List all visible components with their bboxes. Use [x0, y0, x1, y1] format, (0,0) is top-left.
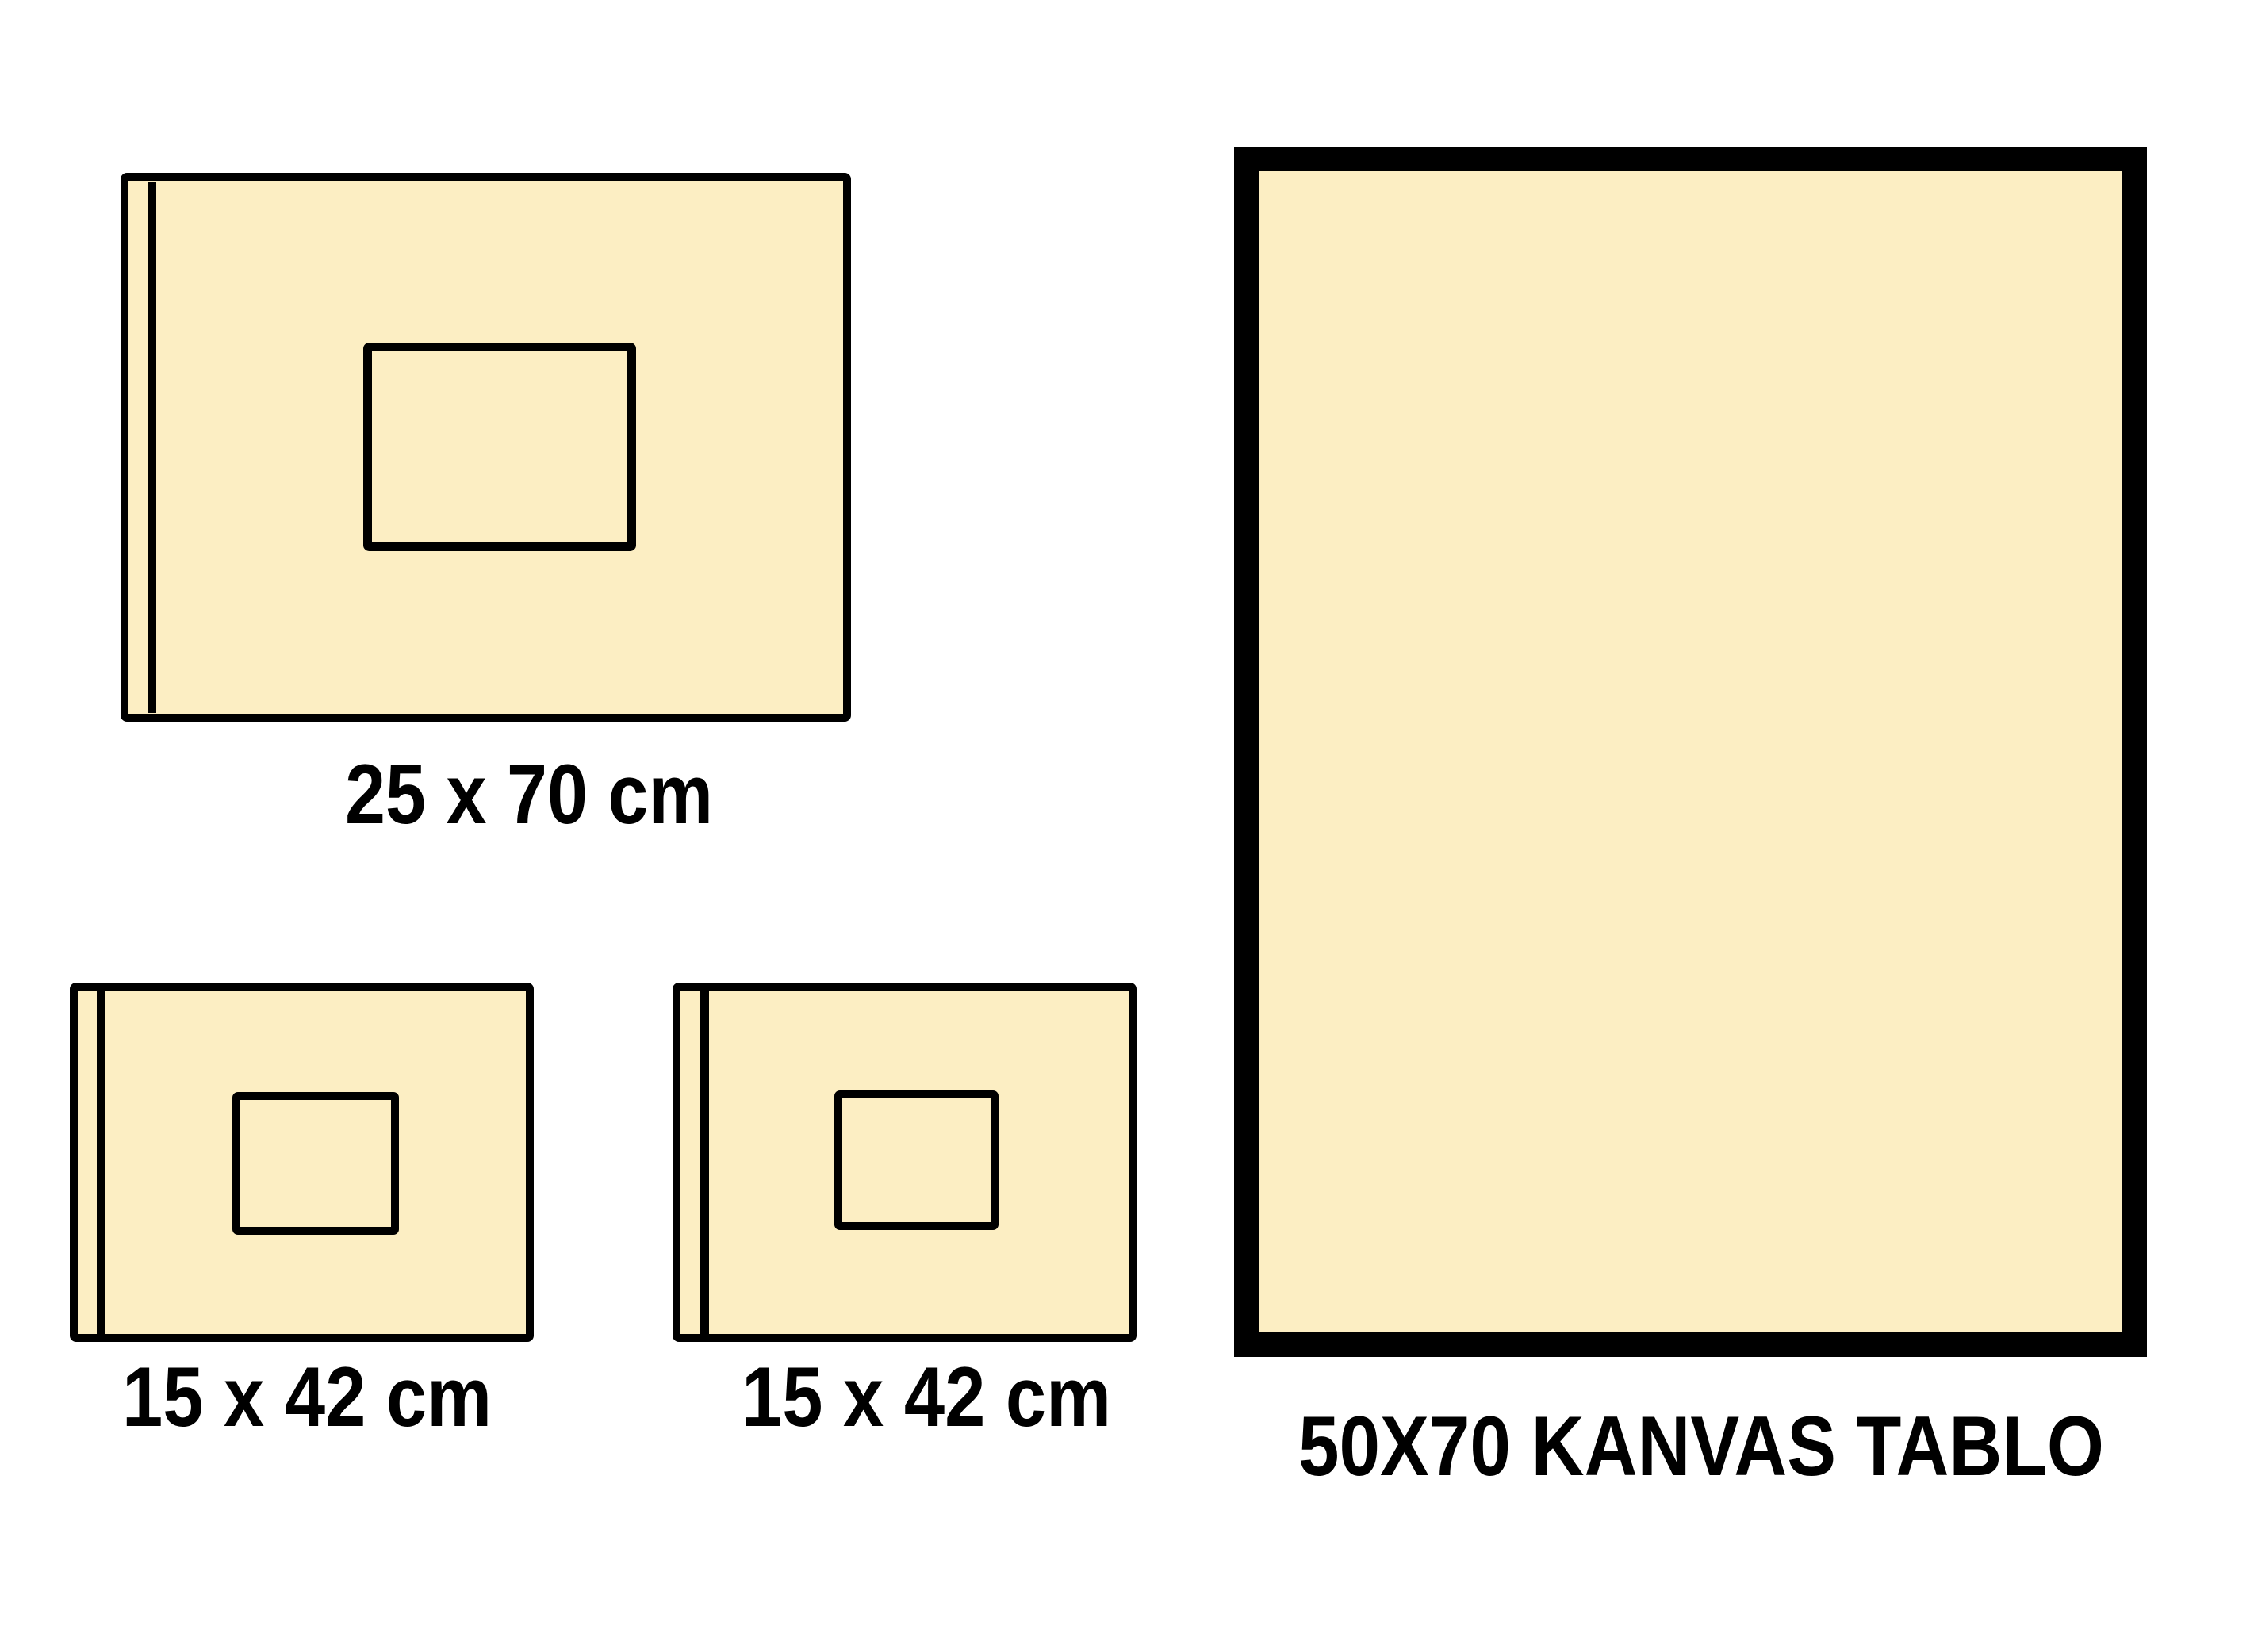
svg-text:50X70 KANVAS TABLO: 50X70 KANVAS TABLO [1298, 1398, 2104, 1493]
svg-text:15 x 42 cm: 15 x 42 cm [122, 1349, 492, 1444]
svg-text:25 x 70 cm: 25 x 70 cm [345, 746, 713, 841]
svg-text:15 x 42 cm: 15 x 42 cm [742, 1349, 1111, 1444]
